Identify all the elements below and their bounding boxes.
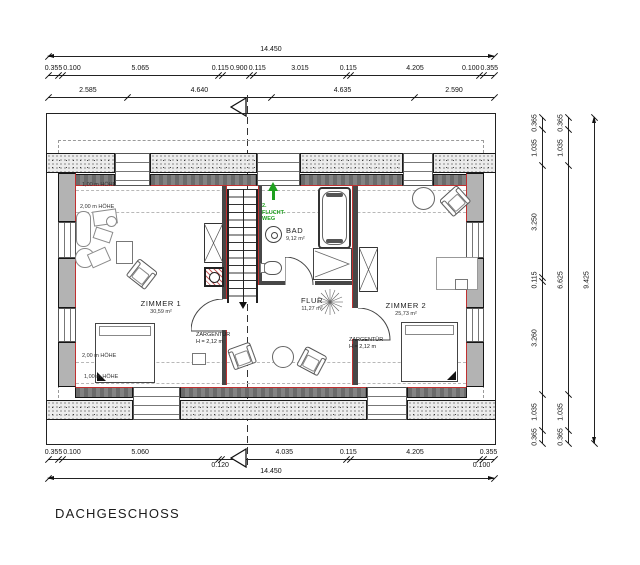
dim-dimlabel: 4.635 (334, 87, 352, 94)
gable-wall (58, 258, 76, 308)
dim-chain-top-detail: 0.3550.1005.0650.1150.9000.1153.0150.115… (48, 63, 494, 79)
door-label-line: H = 2,12 m (349, 344, 383, 351)
dim-dimlabel: 0.900 (230, 65, 248, 72)
window (466, 222, 484, 258)
dim-dimlabel: 2.590 (445, 87, 463, 94)
dim-dimlabel: 1.035 (532, 404, 539, 422)
height-label-2m: 2,00 m HÖHE (80, 204, 114, 210)
equipment (93, 227, 114, 244)
door-bad (285, 257, 314, 286)
equipment (106, 216, 117, 227)
dim-dimlabel: 14.450 (260, 468, 281, 475)
drawing-title: DACHGESCHOSS (55, 506, 180, 521)
dim-dimlabel: 0.115 (249, 65, 266, 72)
knee-wall (433, 153, 496, 173)
dim-chain-right-overall: 9.425 (582, 117, 598, 443)
dim-chain-right-detail: 0.3651.0353.2500.1153.2601.0350.365 (530, 117, 546, 443)
dim-chain-bottom-overall: 14.450 (48, 466, 494, 482)
dim-dimlabel: 0.115 (340, 65, 357, 72)
section-marker-bottom-icon (230, 448, 247, 468)
window (466, 308, 484, 342)
dim-dimline (48, 75, 494, 76)
height-line-1m (76, 383, 466, 384)
knee-wall (46, 153, 115, 173)
dim-dimlabel: 0.365 (532, 115, 539, 133)
knee-wall (407, 400, 496, 420)
dim-dimlabel: 9.425 (584, 271, 591, 289)
height-label-2m: 2,00 m HÖHE (82, 353, 116, 359)
window-band (150, 174, 257, 186)
knee-wall (150, 153, 257, 173)
window (58, 308, 76, 342)
height-label-1m: 1,00 m HÖHE (82, 182, 116, 188)
window (115, 153, 150, 186)
door-label-zimmer1: ZARGENTÜR H = 2,12 m (196, 332, 230, 345)
blanket-corner-icon (447, 371, 456, 380)
room-name: FLUR (272, 297, 352, 305)
wardrobe (359, 247, 378, 292)
window (58, 222, 76, 258)
dim-dimlabel: 0.100 (63, 65, 81, 72)
escape-window (257, 153, 300, 186)
dim-dimlabel: 3.260 (532, 329, 539, 347)
knee-wall (46, 400, 133, 420)
dim-dimlabel: 0.365 (532, 428, 539, 446)
dim-dimlabel: 0.355 (45, 65, 63, 72)
window-band (433, 174, 467, 186)
chimney-flue-icon (209, 272, 220, 283)
wall-bad-flur (315, 281, 352, 285)
dim-dimlabel: 2.585 (79, 87, 97, 94)
desk-chair (455, 279, 468, 290)
room-area: 25,73 m² (366, 310, 446, 318)
dim-chain-top-overall: 14.450 (48, 44, 494, 60)
pillow (99, 326, 151, 336)
dim-dimline (48, 459, 494, 460)
floor-plan: 2. FLUCHT- WEG ZIMMER 1 30,59 m² FLUR 11… (46, 113, 496, 445)
window-band (75, 387, 133, 398)
stool (192, 353, 206, 365)
dim-dimline (48, 56, 494, 57)
room-name: ZIMMER 1 (121, 300, 201, 308)
door-label-line: ZARGENTÜR (349, 337, 383, 344)
door-label-line: ZARGENTÜR (196, 332, 230, 339)
dim-dimlabel: 1.035 (558, 404, 565, 422)
escape-line: WEG (262, 216, 302, 223)
dim-dimline (594, 117, 595, 443)
pillow (405, 325, 454, 335)
dim-dimlabel: 5.060 (131, 449, 149, 456)
room-name: ZIMMER 2 (366, 302, 446, 310)
window-band (180, 387, 367, 398)
dim-dimlabel: 0.365 (558, 115, 565, 133)
side-table (116, 241, 133, 264)
round-table (272, 346, 294, 368)
dim-dimlabel: 1.035 (558, 139, 565, 157)
drain-icon (271, 232, 278, 239)
staircase (227, 189, 258, 303)
height-label-1m: 1,00 m HÖHE (84, 374, 118, 380)
dim-dimlabel: 0.100 (63, 449, 81, 456)
door-label-zimmer2: ZARGENTÜR H = 2,12 m (349, 337, 383, 350)
room-label-flur: FLUR 11,27 m² (272, 297, 352, 313)
dim-dimlabel: 1.035 (532, 139, 539, 157)
dim-chain-right-mid: 0.3651.0356.6251.0350.365 (556, 117, 572, 443)
room-label-zimmer2: ZIMMER 2 25,73 m² (366, 302, 446, 318)
washbasin (265, 226, 282, 243)
escape-route-label: 2. FLUCHT- WEG (262, 203, 302, 223)
wall-bad-flur (262, 281, 285, 285)
dim-dimlabel: 0.115 (340, 449, 357, 456)
room-name: BAD (286, 227, 330, 235)
dim-dimlabel: 0.365 (558, 428, 565, 446)
bed (401, 322, 458, 382)
window-band (300, 174, 403, 186)
knee-wall (180, 400, 367, 420)
gable-wall (58, 342, 76, 387)
dim-dimlabel: 14.450 (260, 46, 281, 53)
dim-dimlabel: 3.250 (532, 213, 539, 231)
dim-dimlabel: 3.015 (291, 65, 309, 72)
gable-wall (58, 173, 76, 222)
dim-dimlabel: 0.355 (480, 65, 498, 72)
dim-chain-top-rooms: 2.5854.6404.6352.590 (48, 85, 494, 101)
dim-dimlabel: 4.035 (276, 449, 294, 456)
dim-dimlabel: 4.205 (406, 65, 424, 72)
room-label-zimmer1: ZIMMER 1 30,59 m² (121, 300, 201, 316)
toilet (263, 261, 282, 275)
dim-dimlabel: 0.115 (212, 65, 229, 72)
dim-dimlabel: 0.115 (532, 271, 539, 288)
door-label-line: H = 2,12 m (196, 339, 230, 346)
gable-wall (466, 342, 484, 387)
dim-dimlabel: 6.625 (558, 271, 565, 289)
dim-dimlabel: 4.640 (191, 87, 209, 94)
wall-flur-zimmer2 (352, 186, 358, 308)
toilet-tank (260, 263, 265, 273)
knee-wall (300, 153, 403, 173)
tub-faucet-icon (326, 193, 343, 197)
window (403, 153, 433, 186)
equipment (76, 211, 91, 247)
dim-dimlabel: 0.100 (462, 65, 480, 72)
room-area: 30,59 m² (121, 308, 201, 316)
escape-route-arrow-icon (268, 182, 278, 191)
wardrobe (204, 223, 223, 263)
window (367, 387, 407, 420)
window-band (407, 387, 467, 398)
stair-arrow-icon (239, 302, 247, 309)
room-area: 9,12 m² (286, 235, 330, 243)
stair-walkline (243, 189, 244, 303)
escape-route-arrow-stem (272, 191, 275, 200)
room-area: 11,27 m² (272, 305, 352, 313)
dim-dimlabel: 5.065 (132, 65, 150, 72)
dim-dimline (48, 478, 494, 479)
shower-cabinet (313, 248, 352, 280)
dim-dimlabel: 4.205 (406, 449, 424, 456)
room-label-bad: BAD 9,12 m² (286, 227, 330, 243)
dim-dimlabel: 0.355 (45, 449, 63, 456)
window (133, 387, 180, 420)
chimney (204, 267, 224, 287)
dim-dimlabel: 0.355 (480, 449, 498, 456)
round-table (412, 187, 435, 210)
